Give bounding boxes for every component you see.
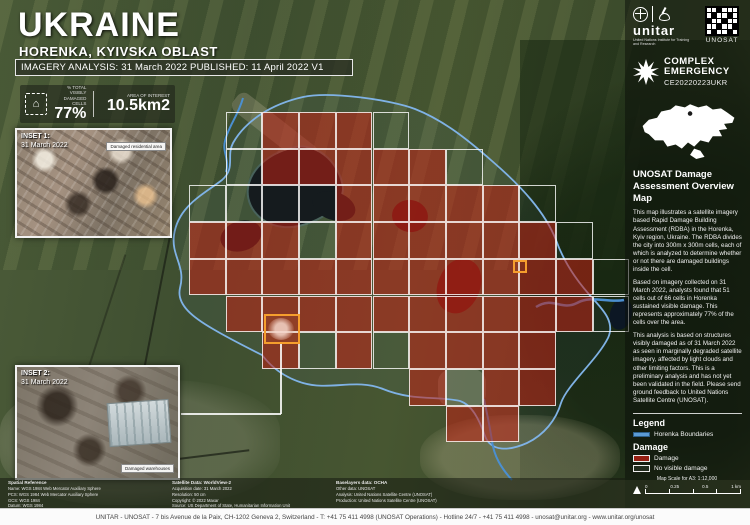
unosat-logo-label: UNOSAT [702,37,742,44]
grid-cell-no-damage [226,185,263,222]
unosat-damage-map: UKRAINE HORENKA, KYIVSKA OBLAST IMAGERY … [0,0,750,525]
grid-cell-no-damage [446,369,483,406]
grid-cell-damaged [409,149,446,186]
inset-2-callout: Damaged warehouses [121,464,174,473]
inset-1-image: INSET 1: 31 March 2022 Damaged residenti… [15,128,172,238]
unosat-pixel-logo [705,6,739,36]
un-emblem-icon [633,7,648,22]
grid-cell-damaged [336,259,373,296]
grid-cell-damaged [483,185,520,222]
grid-cell-no-damage [446,149,483,186]
complex-emergency-block: COMPLEX EMERGENCY CE20220223UKR [633,57,742,87]
grid-cell-damaged [446,332,483,369]
damage-swatch [633,455,650,462]
unitar-logo: unitar [633,24,696,37]
damage-stats-box: ⌂ % TOTAL VISIBLY DAMAGED CELLS 77% AREA… [20,85,175,123]
grid-cell-damaged [446,296,483,333]
boundary-swatch [633,432,650,437]
satellite-dish-icon [657,7,671,21]
grid-cell-no-damage [593,296,630,333]
overview-paragraph: This analysis is based on structures vis… [633,332,742,405]
grid-cell-damaged [336,112,373,149]
grid-cell-no-damage [593,259,630,296]
inset-1-callout: Damaged residential area [106,142,166,151]
divider [633,413,742,414]
grid-cell-damaged [373,149,410,186]
damaged-cells-label: % TOTAL VISIBLY DAMAGED CELLS [53,85,86,107]
grid-cell-damaged [483,406,520,443]
legend-damage-group: Damage [633,442,742,452]
emergency-code: CE20220223UKR [664,79,730,87]
grid-cell-damaged [519,332,556,369]
grid-cell-damaged [483,296,520,333]
grid-cell-damaged [409,332,446,369]
grid-cell-damaged [446,406,483,443]
divider [652,6,653,22]
footer-bar: UNITAR - UNOSAT - 7 bis Avenue de la Pai… [0,508,750,525]
grid-cell-damaged [299,149,336,186]
grid-cell-no-damage [519,185,556,222]
inset-2-image: INSET 2: 31 March 2022 Damaged warehouse… [15,365,180,480]
inset-1-label: INSET 1: 31 March 2022 [21,133,68,151]
scale-bar [645,489,741,494]
grid-cell-no-damage [373,112,410,149]
grid-cell-damaged [226,296,263,333]
grid-cell-damaged [299,259,336,296]
emergency-line2: EMERGENCY [664,67,730,77]
grid-cell-damaged [299,296,336,333]
damaged-cells-value: 77% [54,106,86,123]
grid-cell-damaged [336,185,373,222]
grid-cell-damaged [336,149,373,186]
overview-paragraph: Based on imagery collected on 31 March 2… [633,279,742,327]
credit-column: Spatial ReferenceName: WGS 1984 Web Merc… [8,480,158,506]
grid-cell-damaged [262,112,299,149]
warehouse-building [107,399,172,447]
grid-cell-no-damage [299,332,336,369]
imagery-analysis-banner: IMAGERY ANALYSIS: 31 March 2022 PUBLISHE… [15,59,353,76]
inset-2-label: INSET 2: 31 March 2022 [21,370,68,388]
overview-paragraphs: This map illustrates a satellite imagery… [633,209,742,404]
grid-cell-no-damage [262,185,299,222]
grid-cell-damaged [373,259,410,296]
grid-cell-damaged [519,369,556,406]
credit-column: Baselayers data: OCHAOther data: UNOSATA… [336,480,486,506]
grid-cell-damaged [189,259,226,296]
grid-cell-damaged [373,296,410,333]
grid-cell-damaged [556,296,593,333]
grid-cell-no-damage [226,149,263,186]
grid-cell-damaged [409,185,446,222]
overview-paragraph: This map illustrates a satellite imagery… [633,209,742,274]
grid-cell-no-damage [373,332,410,369]
grid-cell-damaged [446,185,483,222]
grid-cell-damaged [556,259,593,296]
grid-cell-damaged [336,296,373,333]
grid-cell-damaged [409,296,446,333]
map-title: UKRAINE [18,6,180,45]
ukraine-locator-map [636,95,740,161]
grid-cell-damaged [299,112,336,149]
grid-cell-damaged [446,259,483,296]
horenka-location-marker [687,111,692,116]
scale-bar-block: Map Scale for A3: 1:12,000 00.250.51 km [633,476,741,494]
grid-cell-damaged [262,222,299,259]
scale-caption: Map Scale for A3: 1:12,000 [633,476,741,482]
inset2-leader-line [181,413,281,415]
grid-cell-damaged [373,185,410,222]
grid-cell-damaged [373,222,410,259]
damaged-building-icon: ⌂ [25,93,47,115]
grid-cell-damaged [409,259,446,296]
inset2-locator-rect [264,314,300,344]
legend-item-damage: Damage [633,455,742,462]
grid-cell-damaged [519,296,556,333]
grid-cell-no-damage [189,185,226,222]
area-of-interest-value: 10.5km2 [107,98,170,115]
starburst-icon [633,59,659,85]
no-damage-swatch [633,465,650,472]
credit-column: Satellite Data: WorldView-2Acquisition d… [172,480,322,506]
logo-row: unitar United Nations Institute for Trai… [633,6,742,47]
grid-cell-no-damage [299,185,336,222]
grid-cell-no-damage [226,112,263,149]
grid-cell-no-damage [556,222,593,259]
grid-cell-damaged [226,222,263,259]
overview-title: UNOSAT Damage Assessment Overview Map [633,169,742,205]
legend-title: Legend [633,418,742,428]
grid-cell-damaged [262,259,299,296]
grid-cell-damaged [483,369,520,406]
grid-cell-damaged [409,369,446,406]
legend-item-boundary: Horenka Boundaries [633,431,742,438]
grid-cell-no-damage [299,222,336,259]
unitar-caption: United Nations Institute for Training an… [633,38,695,47]
grid-cell-damaged [519,222,556,259]
grid-cell-damaged [483,332,520,369]
grid-cell-damaged [262,149,299,186]
credits-bar: Spatial ReferenceName: WGS 1984 Web Merc… [0,478,625,508]
north-arrow-icon [633,486,641,494]
inset1-locator-rect [513,260,527,273]
grid-cell-damaged [446,222,483,259]
footer-contact-text: UNITAR - UNOSAT - 7 bis Avenue de la Pai… [96,514,655,521]
grid-cell-damaged [483,222,520,259]
grid-cell-damaged [336,222,373,259]
grid-cell-damaged [336,332,373,369]
grid-cell-damaged [189,222,226,259]
inset2-leader-line [280,344,282,414]
info-sidebar: unitar United Nations Institute for Trai… [625,0,750,508]
grid-cell-damaged [226,259,263,296]
grid-cell-damaged [409,222,446,259]
legend-item-no-damage: No visible damage [633,465,742,472]
map-subtitle: HORENKA, KYIVSKA OBLAST [19,44,218,59]
